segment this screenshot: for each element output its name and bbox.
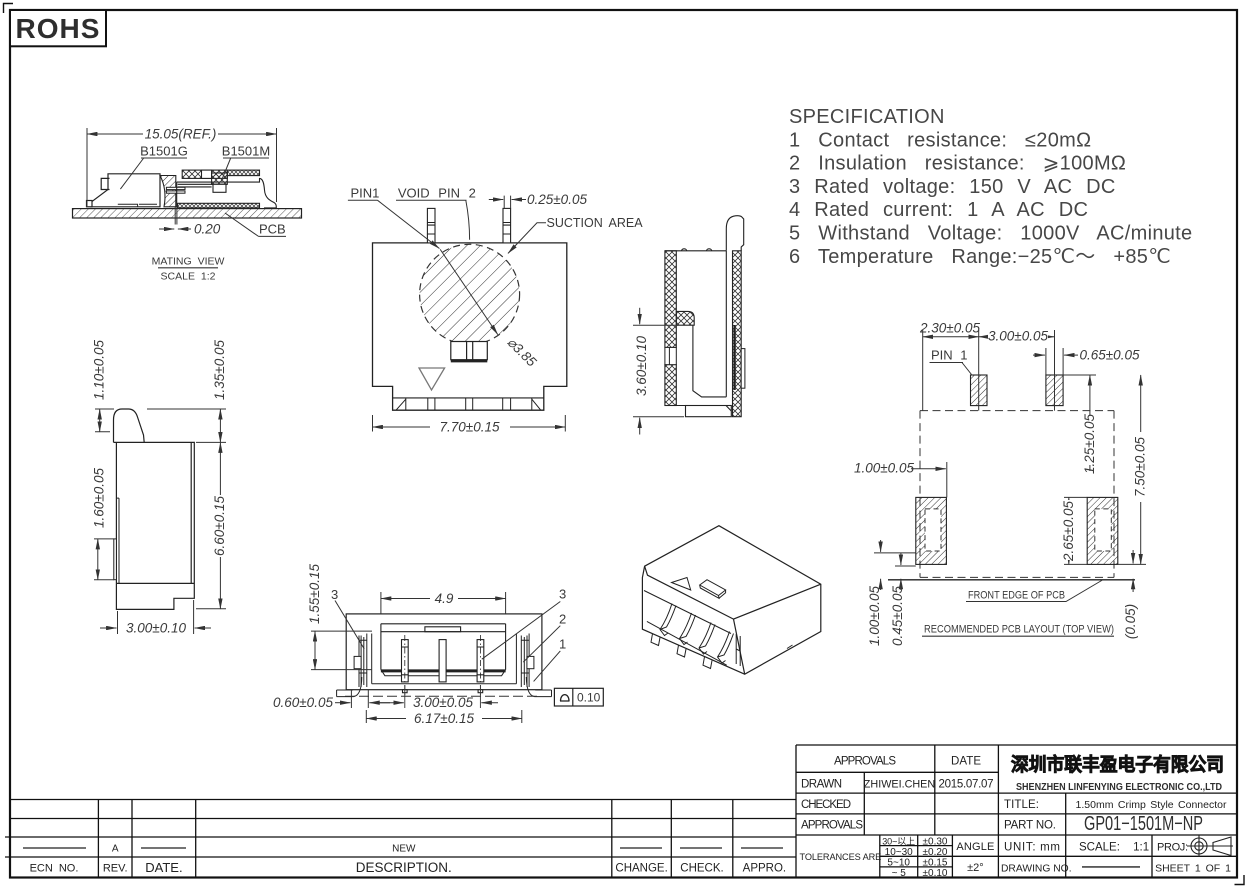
svg-text:SUCTION AREA: SUCTION AREA <box>547 216 644 230</box>
svg-text:7.70±0.15: 7.70±0.15 <box>440 420 500 435</box>
svg-text:3.00±0.05: 3.00±0.05 <box>413 695 473 710</box>
svg-text:SPECIFICATION: SPECIFICATION <box>789 106 945 128</box>
svg-text:DATE: DATE <box>951 756 981 768</box>
svg-text:DRAWN: DRAWN <box>801 779 842 791</box>
svg-text:2 Insulation resistance: ⩾100M: 2 Insulation resistance: ⩾100MΩ <box>789 153 1126 175</box>
svg-text:2015.07.07: 2015.07.07 <box>939 779 994 791</box>
svg-text:B1501M: B1501M <box>222 144 270 159</box>
svg-text:SCALE 1:2: SCALE 1:2 <box>161 271 216 283</box>
svg-text:0.60±0.05: 0.60±0.05 <box>273 695 333 710</box>
svg-text:6.17±0.15: 6.17±0.15 <box>414 711 474 726</box>
svg-text:6 Temperature Range:−25℃～ +85℃: 6 Temperature Range:−25℃～ +85℃ <box>789 246 1171 268</box>
svg-text:APPRO.: APPRO. <box>743 863 786 875</box>
svg-text:DRAWING NO.: DRAWING NO. <box>1001 863 1072 874</box>
svg-text:PART NO.: PART NO. <box>1004 820 1056 832</box>
svg-text:3 Rated voltage: 150 V AC DC: 3 Rated voltage: 150 V AC DC <box>789 176 1116 198</box>
svg-text:UNIT: mm: UNIT: mm <box>1004 841 1060 853</box>
svg-text:DATE.: DATE. <box>145 860 182 875</box>
svg-text:SHENZHEN LINFENYING ELECTRONIC: SHENZHEN LINFENYING ELECTRONIC CO.,LTD <box>1016 781 1222 793</box>
svg-text:PCB: PCB <box>259 222 286 237</box>
svg-text:~ 5: ~ 5 <box>892 868 907 879</box>
svg-text:3.60±0.10: 3.60±0.10 <box>634 336 649 396</box>
svg-text:5~10: 5~10 <box>887 858 910 869</box>
svg-text:0.25±0.05: 0.25±0.05 <box>527 192 587 207</box>
svg-text:0.20: 0.20 <box>194 222 221 237</box>
svg-text:3.00±0.10: 3.00±0.10 <box>126 621 186 636</box>
svg-text:6.60±0.15: 6.60±0.15 <box>212 496 227 556</box>
svg-text:10~30: 10~30 <box>885 847 914 858</box>
svg-text:1.50mm Crimp Style Connector: 1.50mm Crimp Style Connector <box>1076 799 1227 811</box>
svg-text:0.10: 0.10 <box>577 691 601 705</box>
svg-text:MATING VIEW: MATING VIEW <box>152 256 225 268</box>
svg-text:TITLE:: TITLE: <box>1004 799 1039 811</box>
svg-text:3: 3 <box>331 587 338 602</box>
svg-text:(0.05): (0.05) <box>1123 604 1138 639</box>
svg-text:ECN NO.: ECN NO. <box>30 863 79 875</box>
svg-text:1.55±0.15: 1.55±0.15 <box>307 564 322 624</box>
svg-text:4.9: 4.9 <box>435 591 454 606</box>
svg-text:GP01−1501M−NP: GP01−1501M−NP <box>1084 813 1203 835</box>
svg-text:PROJ:: PROJ: <box>1157 841 1188 853</box>
svg-text:APPROVALS: APPROVALS <box>801 820 863 832</box>
svg-text:1.00±0.05: 1.00±0.05 <box>867 586 882 646</box>
svg-text:±0.20: ±0.20 <box>923 847 948 858</box>
svg-text:SCALE: 1:1: SCALE: 1:1 <box>1079 841 1149 853</box>
svg-text:1.60±0.05: 1.60±0.05 <box>92 468 107 528</box>
svg-text:5 Withstand Voltage: 1000V AC/: 5 Withstand Voltage: 1000V AC/minute <box>789 223 1192 245</box>
svg-text:ROHS: ROHS <box>16 13 101 44</box>
svg-text:REV.: REV. <box>103 863 128 875</box>
svg-text:2: 2 <box>559 612 566 627</box>
svg-text:1.10±0.05: 1.10±0.05 <box>92 340 107 400</box>
svg-text:1 Contact resistance: ≤20mΩ: 1 Contact resistance: ≤20mΩ <box>789 129 1091 151</box>
svg-text:PIN1: PIN1 <box>351 186 380 201</box>
svg-text:7.50±0.05: 7.50±0.05 <box>1133 437 1148 497</box>
svg-text:⌀3.85: ⌀3.85 <box>504 335 539 370</box>
svg-text:0.65±0.05: 0.65±0.05 <box>1080 348 1140 363</box>
svg-text:TOLERANCES ARE: TOLERANCES ARE <box>800 852 882 862</box>
svg-text:3: 3 <box>559 587 566 602</box>
svg-text:DESCRIPTION.: DESCRIPTION. <box>356 860 452 875</box>
svg-text:PIN 1: PIN 1 <box>931 348 968 363</box>
svg-text:深圳市联丰盈电子有限公司: 深圳市联丰盈电子有限公司 <box>1011 754 1224 775</box>
svg-text:ZHIWEI.CHEN: ZHIWEI.CHEN <box>864 779 935 791</box>
svg-text:±0.30: ±0.30 <box>923 836 948 847</box>
svg-text:2.30±0.05: 2.30±0.05 <box>919 321 980 336</box>
svg-text:±0.15: ±0.15 <box>923 858 948 869</box>
svg-text:CHANGE.: CHANGE. <box>615 863 667 875</box>
svg-text:RECOMMENDED PCB LAYOUT (TOP VI: RECOMMENDED PCB LAYOUT (TOP VIEW) <box>924 624 1114 636</box>
svg-text:SHEET 1 OF 1: SHEET 1 OF 1 <box>1155 862 1231 874</box>
svg-text:A: A <box>112 844 119 855</box>
svg-text:APPROVALS: APPROVALS <box>834 756 896 768</box>
svg-text:CHECKED: CHECKED <box>801 799 851 811</box>
svg-text:15.05(REF.): 15.05(REF.) <box>145 127 217 142</box>
svg-text:4 Rated current: 1 A AC DC: 4 Rated current: 1 A AC DC <box>789 199 1088 221</box>
svg-text:±2°: ±2° <box>967 862 984 874</box>
svg-text:CHECK.: CHECK. <box>680 863 723 875</box>
svg-text:0.45±0.05: 0.45±0.05 <box>890 586 905 646</box>
svg-text:1.35±0.05: 1.35±0.05 <box>212 340 227 400</box>
svg-text:1.25±0.05: 1.25±0.05 <box>1082 414 1097 474</box>
svg-text:NEW: NEW <box>392 844 416 855</box>
svg-text:1: 1 <box>559 637 566 652</box>
svg-text:±0.10: ±0.10 <box>923 868 948 879</box>
svg-text:2.65±0.05: 2.65±0.05 <box>1061 501 1076 562</box>
svg-text:30~以上: 30~以上 <box>882 836 915 846</box>
svg-text:B1501G: B1501G <box>140 144 188 159</box>
svg-text:VOID PIN 2: VOID PIN 2 <box>398 186 476 201</box>
svg-text:1.00±0.05: 1.00±0.05 <box>854 461 914 476</box>
svg-text:ANGLE: ANGLE <box>956 841 994 853</box>
svg-text:FRONT EDGE OF PCB: FRONT EDGE OF PCB <box>968 590 1065 602</box>
svg-text:3.00±0.05: 3.00±0.05 <box>988 329 1048 344</box>
